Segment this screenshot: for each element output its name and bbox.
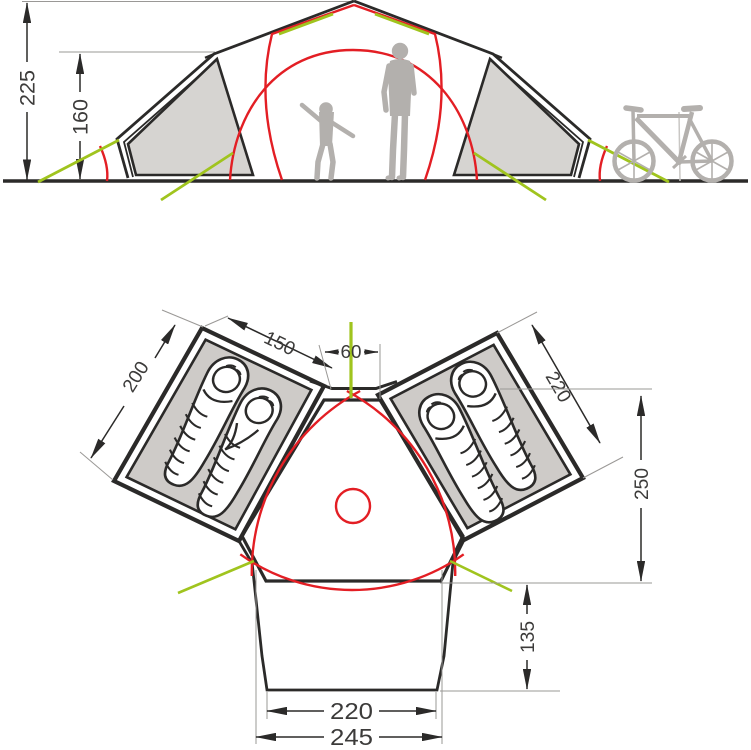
svg-text:135: 135	[518, 621, 539, 653]
svg-text:220: 220	[330, 698, 373, 724]
svg-text:250: 250	[632, 468, 653, 500]
svg-text:220: 220	[541, 368, 575, 406]
svg-text:150: 150	[260, 328, 298, 361]
svg-text:200: 200	[119, 358, 154, 396]
svg-text:160: 160	[70, 99, 93, 135]
svg-text:245: 245	[330, 724, 373, 750]
svg-text:225: 225	[17, 70, 40, 106]
svg-text:60: 60	[341, 342, 362, 362]
